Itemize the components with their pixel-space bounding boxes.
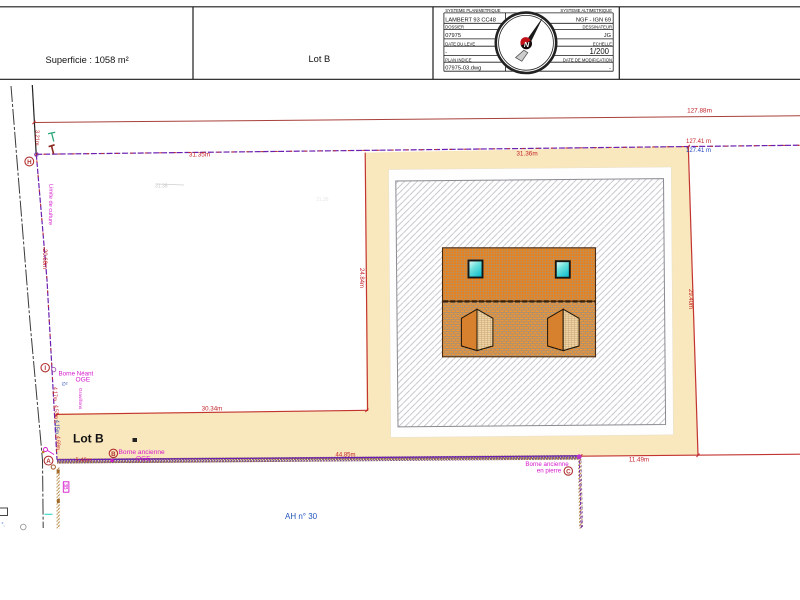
- svg-text:4.69m: 4.69m: [55, 436, 61, 450]
- svg-text:3B: 3B: [62, 483, 68, 490]
- svg-text:127.88m: 127.88m: [687, 108, 712, 115]
- svg-text:-: -: [609, 66, 611, 72]
- svg-text:C: C: [566, 468, 571, 475]
- svg-text:B: B: [111, 451, 116, 458]
- svg-text:20.60m: 20.60m: [41, 249, 47, 269]
- svg-text:3.21m: 3.21m: [33, 130, 39, 146]
- svg-text:ECHELLE: ECHELLE: [593, 41, 612, 46]
- svg-text:4.53m: 4.53m: [53, 405, 59, 419]
- svg-text:29.40m: 29.40m: [687, 289, 693, 309]
- svg-text:Gravillons: Gravillons: [77, 388, 83, 410]
- svg-text:NGF - IGN 69: NGF - IGN 69: [576, 18, 611, 24]
- svg-text:11.49m: 11.49m: [629, 457, 649, 464]
- svg-text:-: -: [445, 50, 447, 56]
- svg-text:07975: 07975: [445, 33, 461, 39]
- svg-text:AH n° 30: AH n° 30: [285, 512, 318, 521]
- svg-text:Limite de culture: Limite de culture: [47, 184, 54, 225]
- svg-text:°‚: °‚: [2, 522, 5, 528]
- svg-text:JG: JG: [604, 33, 611, 39]
- svg-text:Lot B: Lot B: [309, 54, 331, 64]
- svg-text:DATE DU LEVE: DATE DU LEVE: [445, 41, 475, 46]
- svg-text:SYSTEME ALTIMETRIQUE: SYSTEME ALTIMETRIQUE: [560, 8, 612, 13]
- svg-text:LAMBERT 93 CC48: LAMBERT 93 CC48: [445, 18, 496, 24]
- svg-text:SYSTEME PLANIMETRIQUE: SYSTEME PLANIMETRIQUE: [445, 8, 501, 13]
- svg-text:24.84m: 24.84m: [358, 268, 364, 288]
- svg-text:Superficie : 1058 m²: Superficie : 1058 m²: [46, 55, 129, 65]
- svg-text:N: N: [524, 40, 530, 49]
- svg-text:127.41 m: 127.41 m: [686, 148, 711, 154]
- svg-text:31.36m: 31.36m: [516, 151, 537, 158]
- svg-text:30.34m: 30.34m: [202, 406, 223, 413]
- svg-text:5.40m: 5.40m: [75, 457, 91, 463]
- svg-text:4.17m: 4.17m: [52, 387, 58, 401]
- svg-text:en pierre: en pierre: [537, 468, 562, 475]
- svg-text:PLAN INDICE: PLAN INDICE: [445, 57, 472, 62]
- svg-text:DESSINATEUR: DESSINATEUR: [583, 25, 612, 30]
- svg-text:127.41 m: 127.41 m: [686, 139, 711, 145]
- svg-text:A: A: [46, 458, 51, 465]
- svg-text:H: H: [27, 159, 32, 166]
- svg-text:I: I: [44, 365, 46, 372]
- svg-text:OGE: OGE: [136, 456, 151, 463]
- svg-text:31.35m: 31.35m: [189, 152, 210, 159]
- svg-text:4.15m: 4.15m: [54, 420, 60, 434]
- svg-text:DATE DE MODIFICATION: DATE DE MODIFICATION: [563, 57, 612, 62]
- svg-text:∅²: ∅²: [62, 382, 68, 388]
- svg-text:31.36: 31.36: [316, 197, 329, 203]
- svg-text:Lot B: Lot B: [73, 432, 104, 446]
- svg-text:1/200: 1/200: [589, 47, 609, 56]
- svg-text:DOSSIER: DOSSIER: [445, 25, 464, 30]
- svg-text:07975-03.dwg: 07975-03.dwg: [445, 66, 481, 72]
- svg-text:OGE: OGE: [76, 377, 91, 384]
- svg-text:44.85m: 44.85m: [335, 452, 355, 458]
